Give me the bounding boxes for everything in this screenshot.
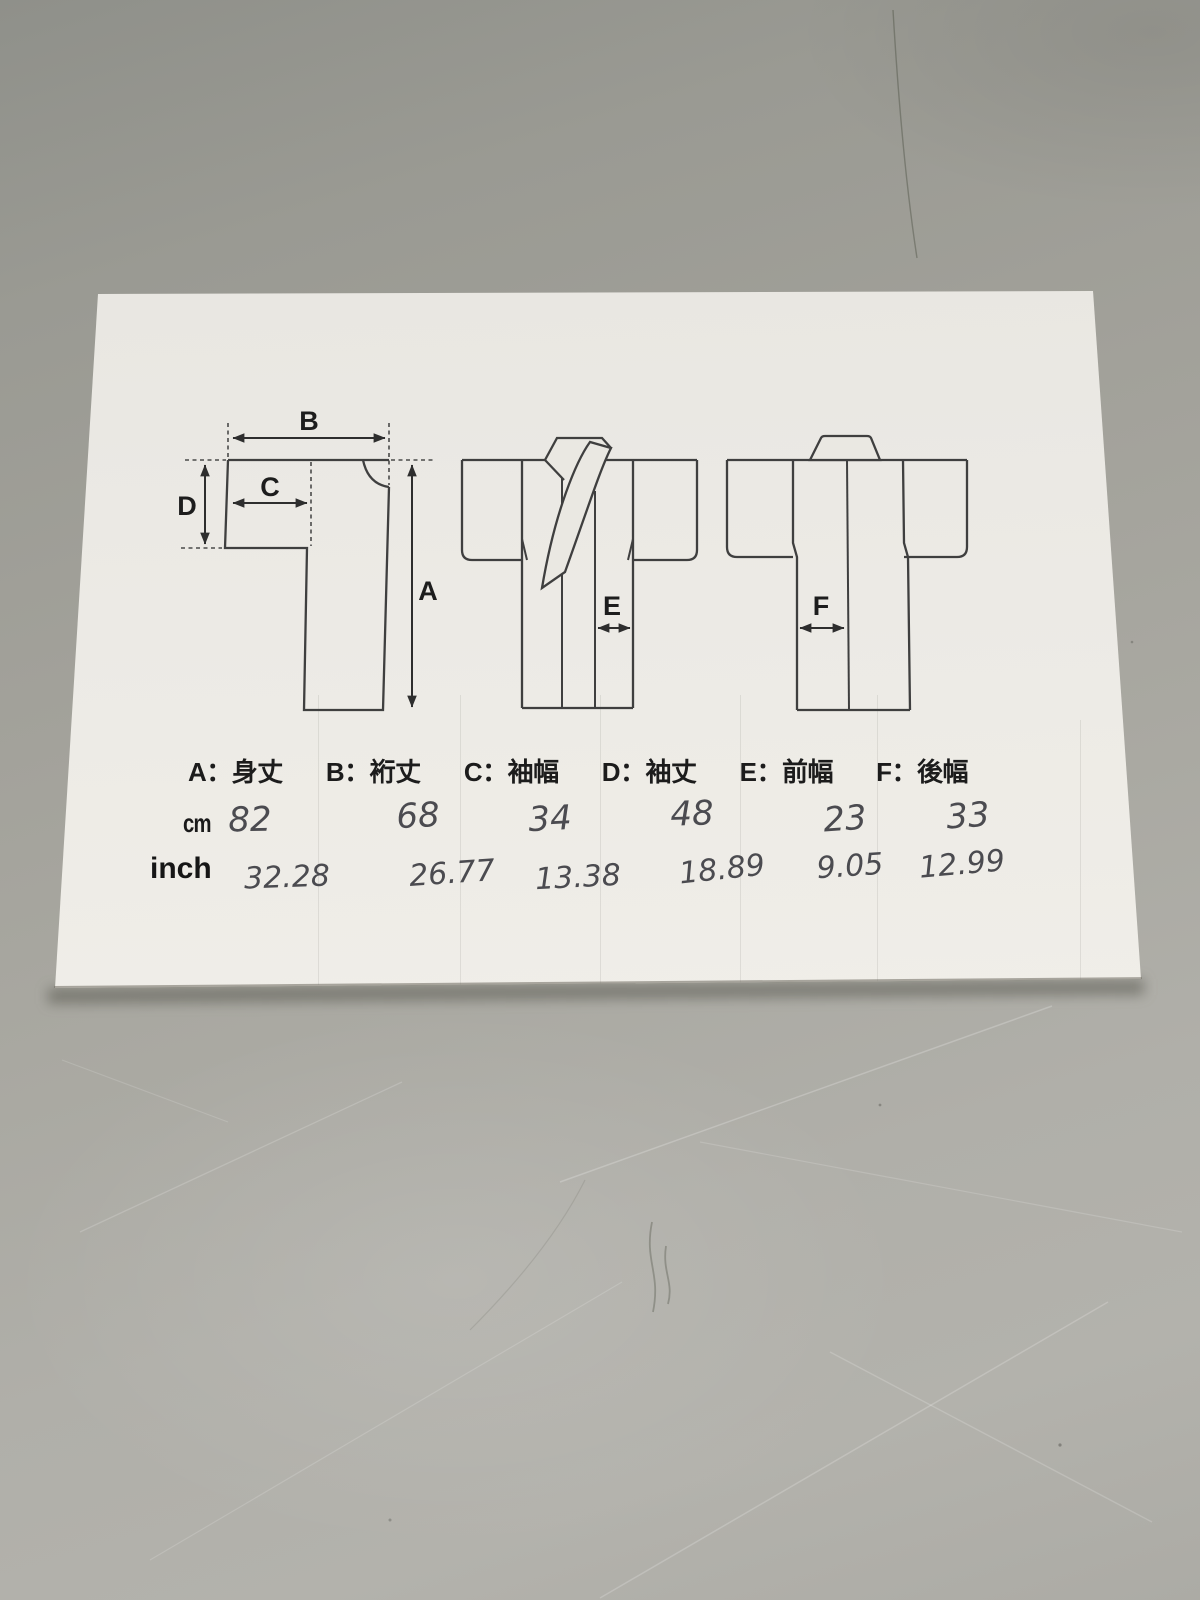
measurement-legend: A：身丈 B：裄丈 C：袖幅 D：袖丈 E：前幅 F：後幅 [188,752,968,789]
column-rule [877,695,878,985]
dimension-label-f: F [813,591,830,621]
dimension-label-e: E [603,591,621,621]
legend-item-c: C：袖幅 [464,752,559,789]
dimension-label-d: D [177,491,197,521]
column-rule [1080,720,1081,982]
column-rule [740,695,741,985]
photo-of-kimono-size-chart: B C D A [0,0,1200,1600]
legend-item-f: F：後幅 [876,752,968,789]
inch-value: 13.38 [522,857,634,898]
inch-value: 9.05 [794,845,906,888]
column-rule [460,695,461,985]
sleeve-measurement-diagram: B C D A [165,385,455,715]
dimension-label-c: C [260,472,280,502]
cm-value: 33 [912,792,1025,840]
inch-value: 18.89 [665,846,778,892]
cm-value: 34 [494,796,606,842]
cm-value: 48 [636,792,747,836]
kimono-back-diagram: F [700,420,980,720]
dimension-label-b: B [299,406,319,436]
legend-item-e: E：前幅 [740,752,833,789]
inch-unit-label: inch [150,852,212,886]
kimono-front-diagram: E [440,415,710,715]
cm-value: 82 [195,799,306,841]
cm-value: 68 [362,793,474,839]
dimension-label-a: A [418,576,438,606]
column-rule [318,695,319,985]
cm-value: 23 [789,795,902,843]
inch-value: 12.99 [906,842,1019,886]
inch-value: 26.77 [396,852,508,895]
legend-item-d: D：袖丈 [602,752,697,789]
legend-item-a: A：身丈 [188,752,283,789]
legend-item-b: B：裄丈 [326,752,421,789]
back-collar [810,436,880,460]
inch-value: 32.28 [231,858,342,897]
column-rule [600,695,601,985]
